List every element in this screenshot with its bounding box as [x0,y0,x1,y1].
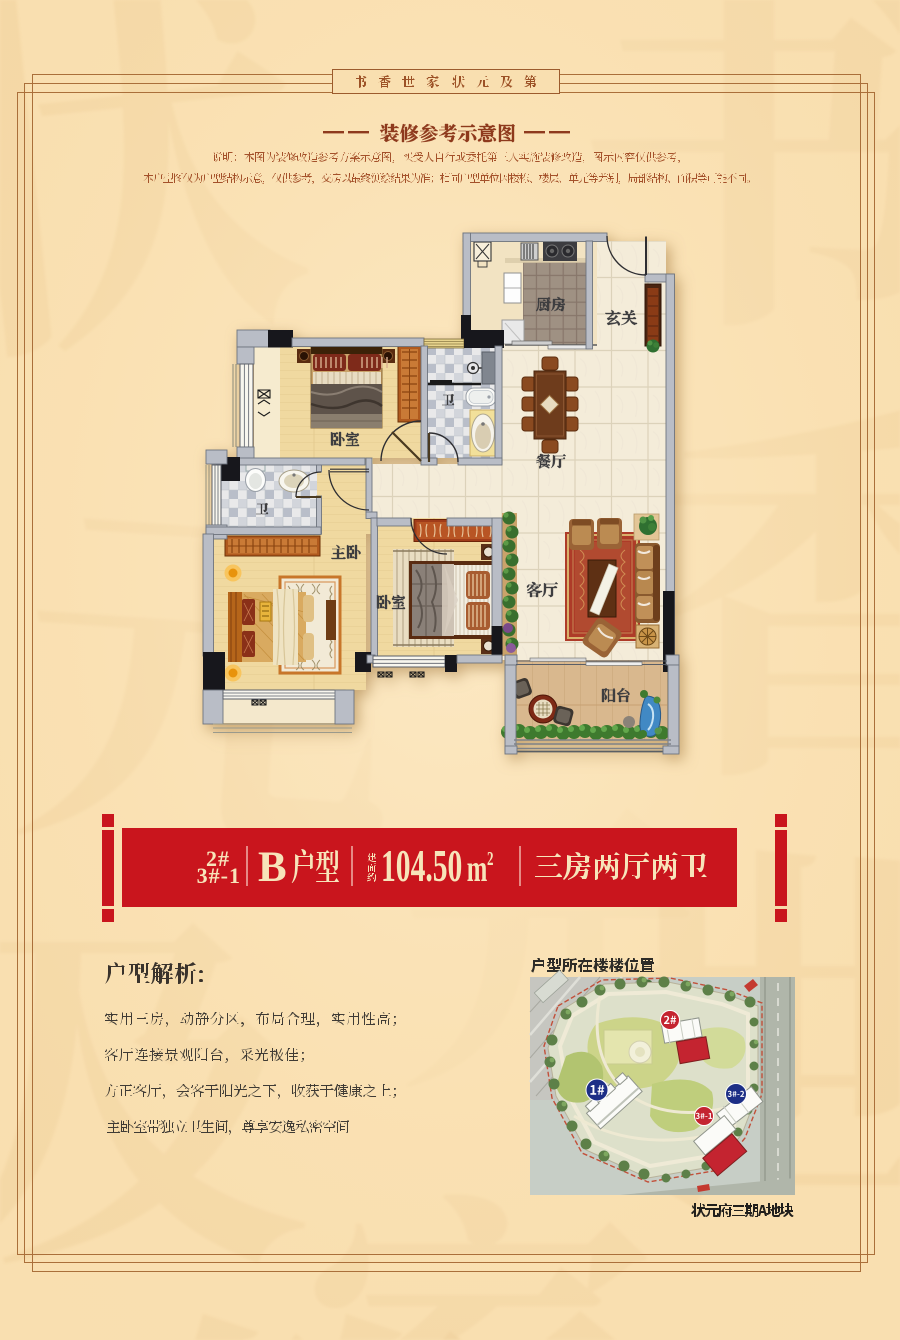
svg-text:2: 2 [487,847,494,870]
svg-text:B: B [258,844,287,891]
svg-text:104.50: 104.50 [381,842,462,892]
svg-text:m: m [467,847,488,890]
svg-text:3#-1: 3#-1 [197,863,241,888]
